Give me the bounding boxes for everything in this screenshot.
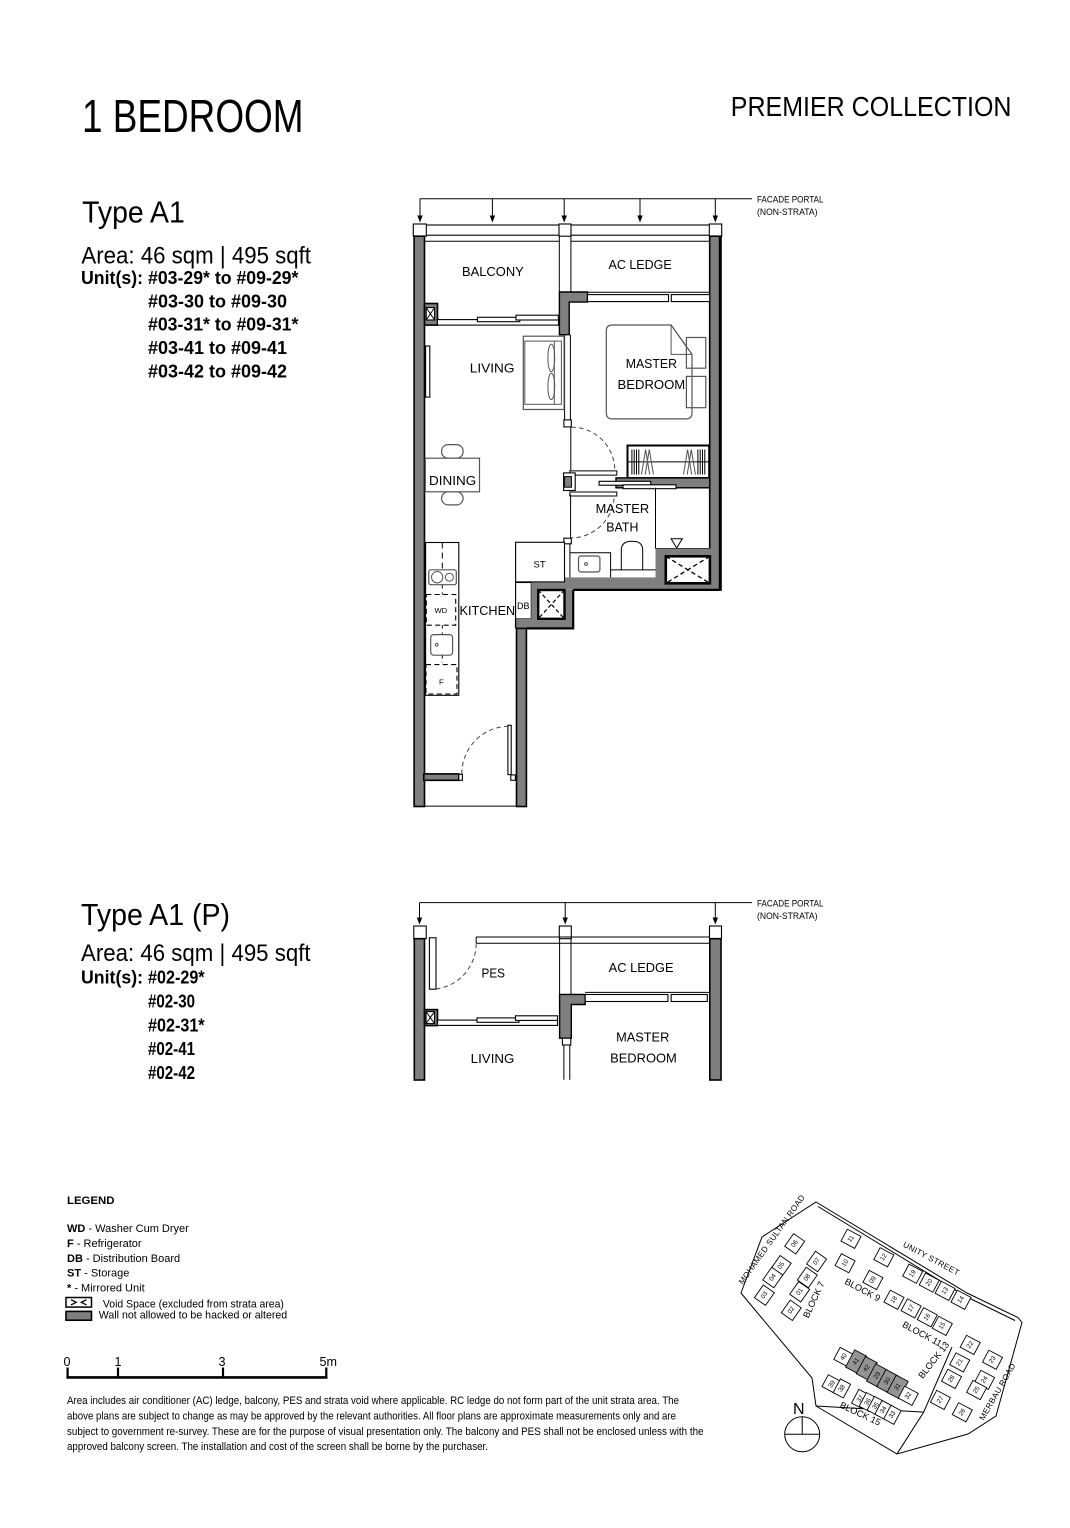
svg-text:Wall not allowed to be hacked: Wall not allowed to be hacked or altered (99, 1310, 287, 1322)
svg-text:#03-41 to #09-41: #03-41 to #09-41 (148, 337, 287, 358)
svg-text:Void Space (excluded from stra: Void Space (excluded from strata area) (103, 1298, 284, 1310)
svg-text:#02-31*: #02-31* (148, 1014, 205, 1035)
svg-text:MASTER: MASTER (616, 1031, 669, 1045)
svg-text:1 BEDROOM: 1 BEDROOM (82, 90, 304, 142)
svg-text:AC LEDGE: AC LEDGE (609, 961, 674, 975)
svg-text:#02-30: #02-30 (148, 991, 195, 1012)
svg-text:WD - Washer Cum Dryer: WD - Washer Cum Dryer (67, 1223, 189, 1235)
svg-text:#03-42 to #09-42: #03-42 to #09-42 (148, 360, 287, 381)
svg-text:#03-29* to #09-29*: #03-29* to #09-29* (148, 267, 299, 288)
svg-text:LIVING: LIVING (471, 1052, 515, 1066)
svg-text:BATH: BATH (606, 521, 638, 535)
svg-text:FACADE PORTAL: FACADE PORTAL (757, 195, 824, 205)
svg-text:#02-41: #02-41 (148, 1038, 195, 1059)
svg-text:#02-29*: #02-29* (148, 967, 205, 988)
svg-text:subject to government re-surve: subject to government re-survey. These a… (67, 1426, 704, 1438)
svg-text:Unit(s):: Unit(s): (81, 967, 143, 988)
svg-text:#02-42: #02-42 (148, 1062, 195, 1083)
svg-text:N: N (793, 1401, 805, 1418)
svg-text:BEDROOM: BEDROOM (618, 378, 686, 392)
svg-text:MASTER: MASTER (626, 357, 677, 371)
svg-text:KITCHEN: KITCHEN (460, 604, 516, 618)
svg-text:BALCONY: BALCONY (462, 265, 524, 279)
svg-text:LEGEND: LEGEND (67, 1195, 114, 1207)
svg-text:Area includes air conditioner: Area includes air conditioner (AC) ledge… (67, 1395, 679, 1407)
svg-text:(NON-STRATA): (NON-STRATA) (757, 207, 818, 217)
svg-text:DB - Distribution Board: DB - Distribution Board (67, 1253, 180, 1265)
svg-text:F - Refrigerator: F - Refrigerator (67, 1238, 142, 1250)
svg-text:0: 0 (64, 1355, 71, 1369)
svg-text:3: 3 (219, 1355, 226, 1369)
svg-text:(NON-STRATA): (NON-STRATA) (757, 911, 818, 921)
svg-text:WD: WD (435, 606, 448, 615)
svg-text:5m: 5m (320, 1355, 338, 1369)
svg-text:Type A1 (P): Type A1 (P) (81, 898, 230, 932)
svg-text:DINING: DINING (429, 474, 476, 488)
svg-text:PREMIER COLLECTION: PREMIER COLLECTION (731, 91, 1012, 122)
svg-text:#03-31* to #09-31*: #03-31* to #09-31* (148, 314, 299, 335)
svg-text:LIVING: LIVING (470, 361, 515, 375)
svg-text:Area: 46 sqm | 495 sqft: Area: 46 sqm | 495 sqft (81, 940, 311, 967)
svg-text:#03-30 to #09-30: #03-30 to #09-30 (148, 290, 287, 311)
svg-text:MASTER: MASTER (596, 502, 650, 516)
svg-text:Type A1: Type A1 (82, 195, 185, 229)
svg-text:PES: PES (482, 967, 506, 981)
svg-text:approved balcony screen. The i: approved balcony screen. The installatio… (67, 1441, 488, 1453)
svg-text:* - Mirrored Unit: * - Mirrored Unit (67, 1282, 145, 1294)
svg-text:ST - Storage: ST - Storage (67, 1268, 129, 1280)
svg-text:1: 1 (115, 1355, 122, 1369)
svg-text:DB: DB (517, 601, 530, 611)
svg-text:ST: ST (534, 560, 546, 571)
svg-text:Unit(s):: Unit(s): (81, 267, 143, 288)
svg-text:Area: 46 sqm | 495 sqft: Area: 46 sqm | 495 sqft (81, 243, 311, 270)
svg-text:above plans are subject to cha: above plans are subject to change as may… (67, 1410, 676, 1422)
svg-text:FACADE PORTAL: FACADE PORTAL (757, 899, 824, 909)
svg-text:AC LEDGE: AC LEDGE (609, 258, 672, 272)
svg-text:BEDROOM: BEDROOM (610, 1052, 677, 1066)
svg-text:F: F (439, 678, 444, 687)
